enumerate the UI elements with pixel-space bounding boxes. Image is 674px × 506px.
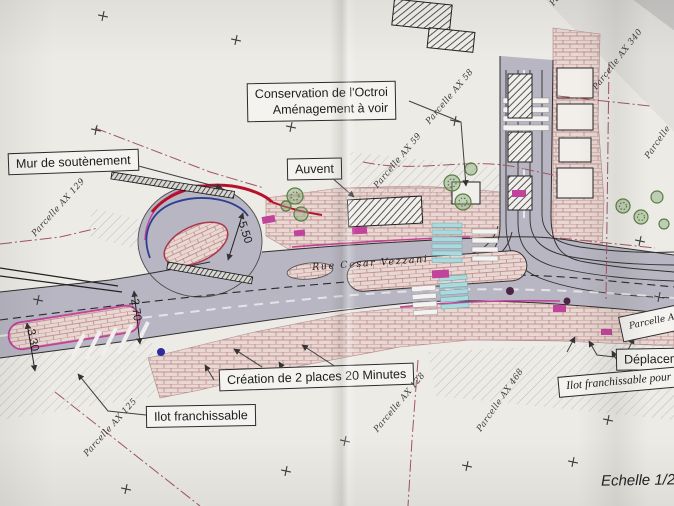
photo-vignette <box>0 0 674 506</box>
site-plan-photo: Conservation de l'Octroi Aménagement à v… <box>0 0 674 506</box>
